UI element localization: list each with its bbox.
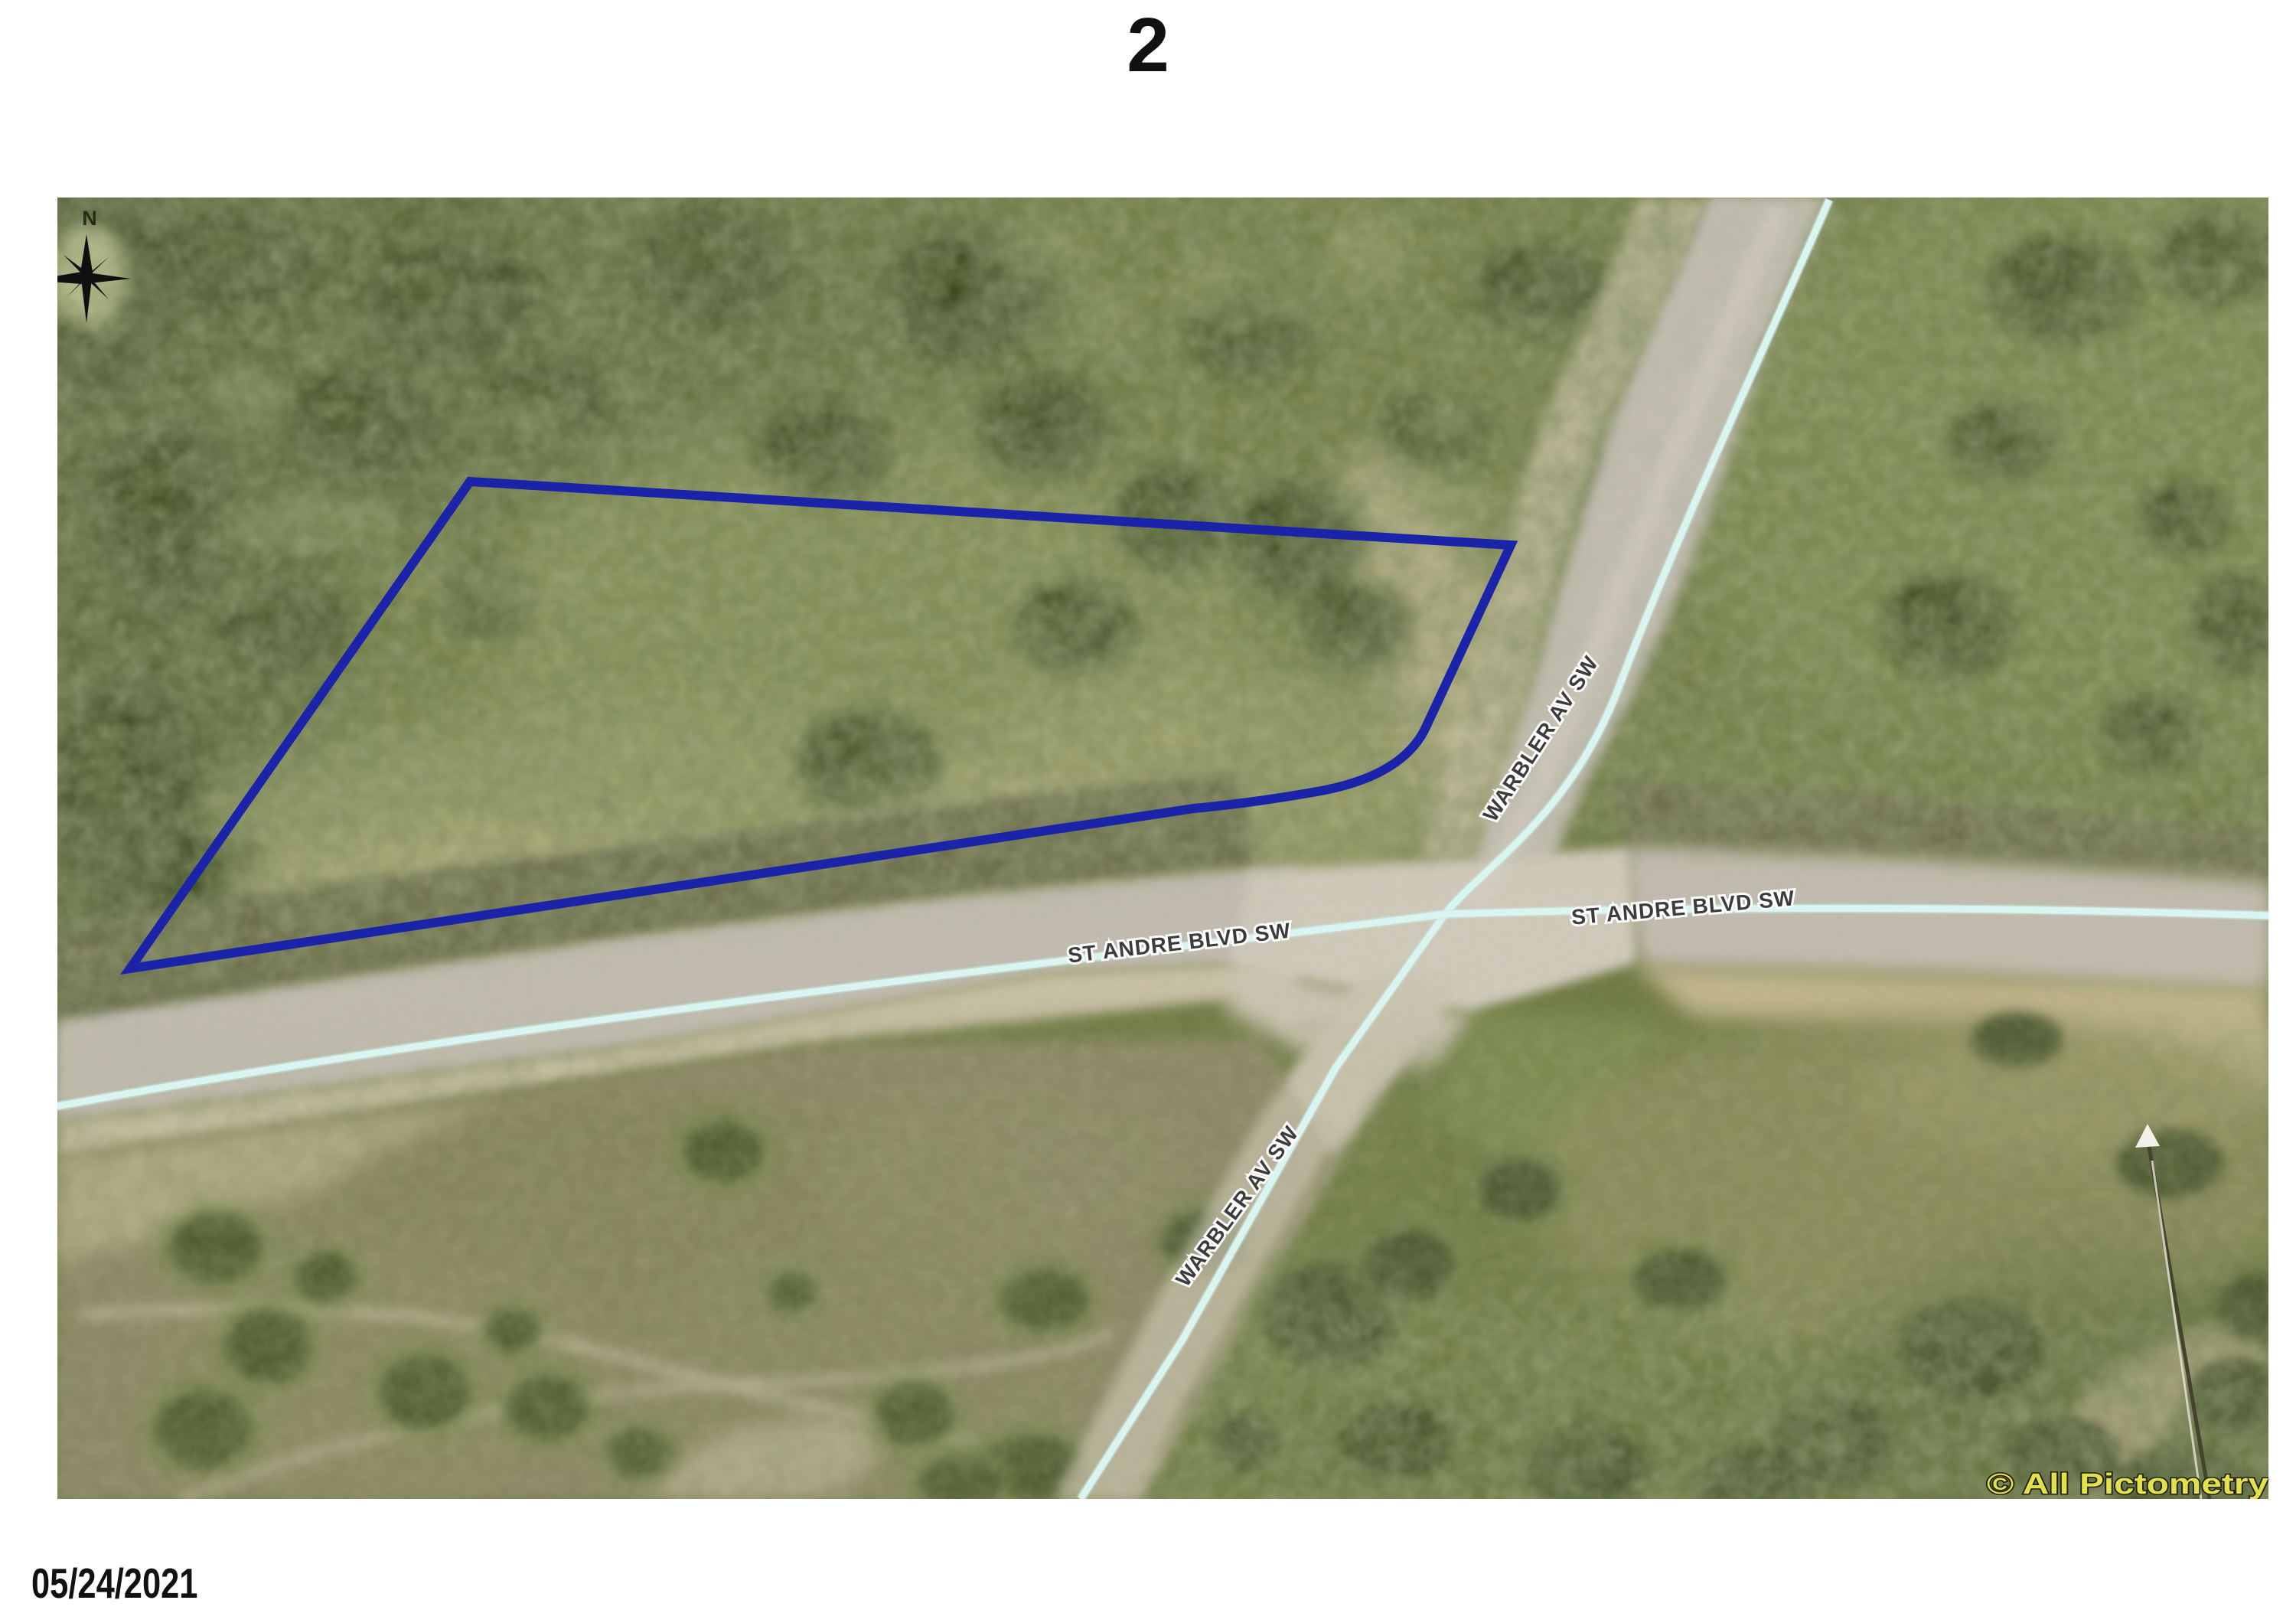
svg-text:N: N	[82, 207, 97, 230]
svg-text:© All Pictometry: © All Pictometry	[1987, 1468, 2268, 1499]
